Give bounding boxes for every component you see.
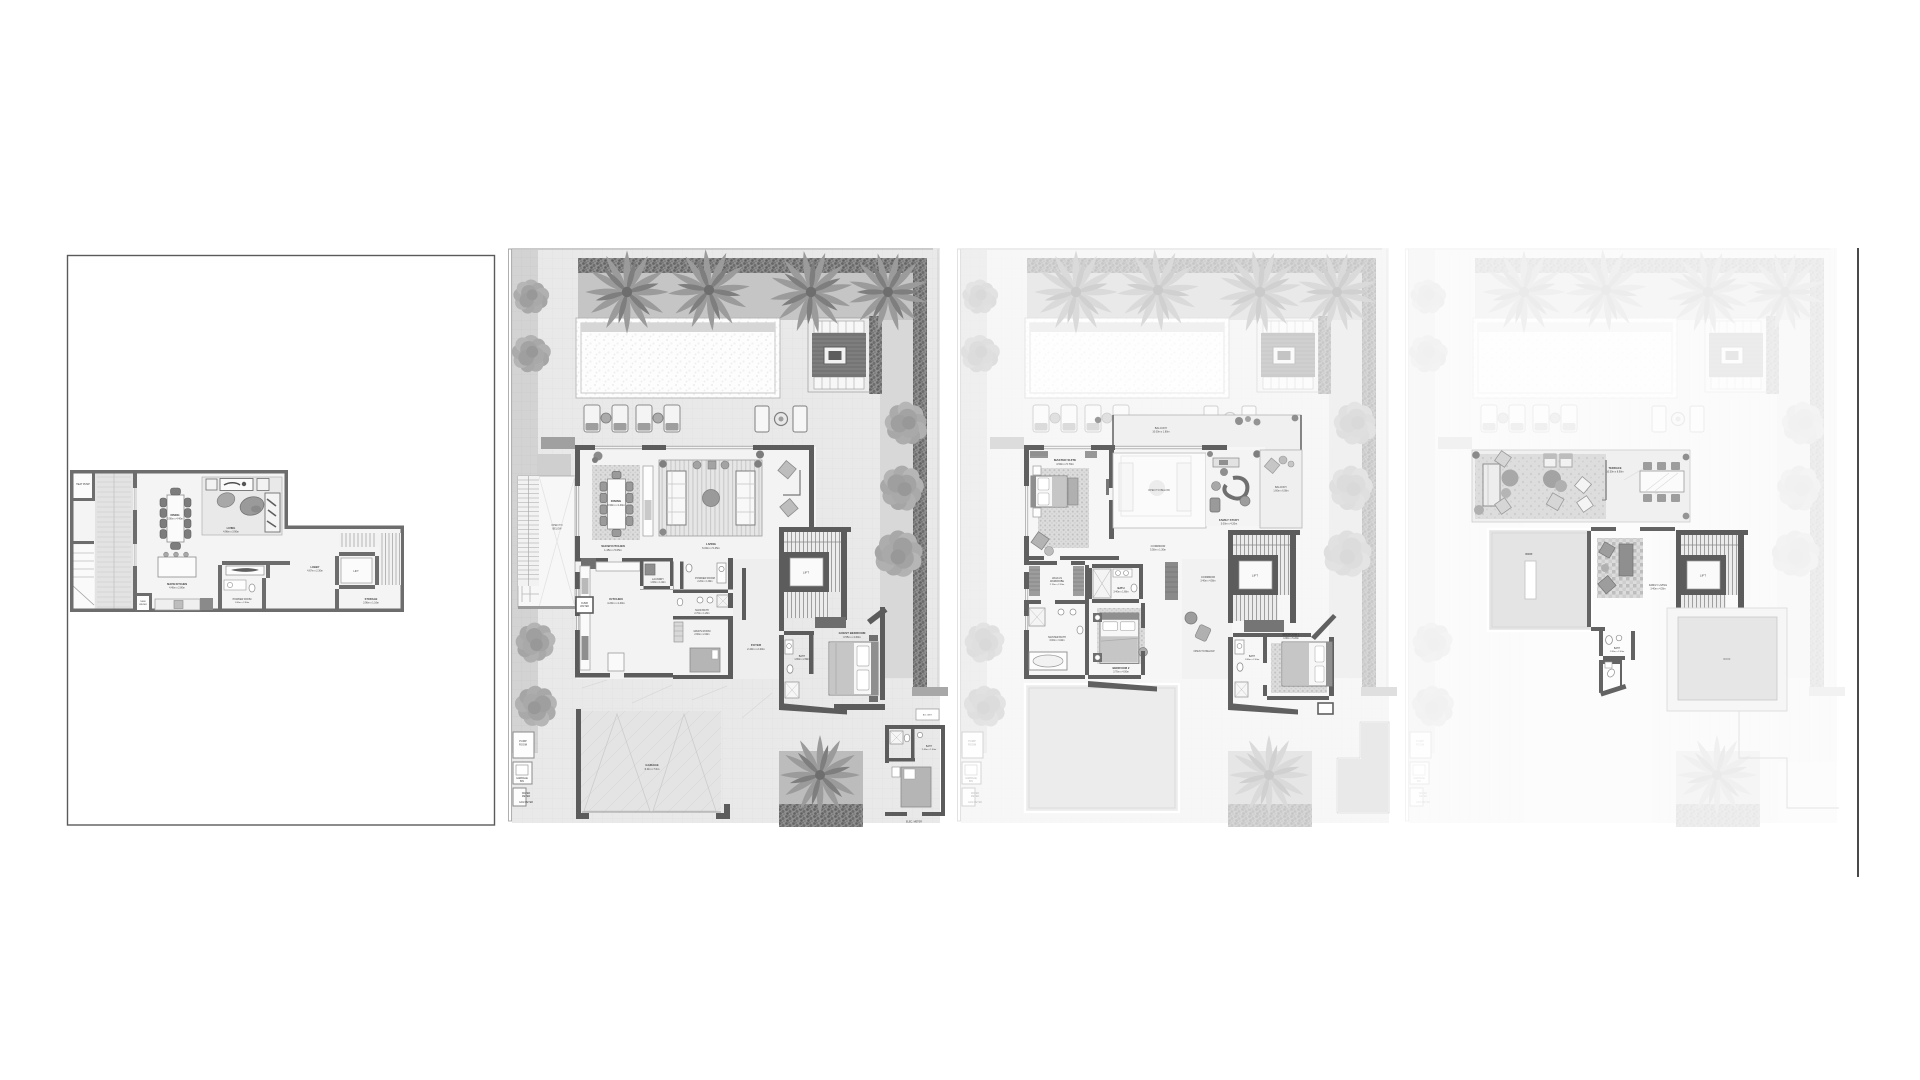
- svg-text:ROOF: ROOF: [1526, 553, 1533, 556]
- svg-text:4.67m x 2.30m: 4.67m x 2.30m: [307, 570, 323, 573]
- svg-text:3.55m x 4.60m: 3.55m x 4.60m: [843, 635, 862, 639]
- svg-text:GARAGE: GARAGE: [645, 763, 658, 767]
- svg-text:LOBBY: LOBBY: [310, 565, 319, 569]
- svg-text:5.50m x 1.30m: 5.50m x 1.30m: [1150, 549, 1166, 552]
- svg-text:STORAGE: STORAGE: [365, 597, 378, 601]
- svg-text:CORRIDOR: CORRIDOR: [1201, 575, 1215, 579]
- svg-text:FAMILY LIVING: FAMILY LIVING: [1649, 583, 1667, 587]
- svg-text:ROOF: ROOF: [1724, 658, 1731, 661]
- svg-text:MAID BATH: MAID BATH: [695, 609, 709, 612]
- svg-text:PUMP: PUMP: [519, 739, 527, 743]
- svg-text:MASTER SUITE: MASTER SUITE: [1054, 458, 1076, 462]
- svg-text:2.40m x 2.20m: 2.40m x 2.20m: [747, 647, 766, 651]
- svg-text:BATH: BATH: [1614, 647, 1620, 650]
- svg-text:LIFT: LIFT: [353, 569, 359, 573]
- svg-text:FAMILY STUDY: FAMILY STUDY: [1219, 518, 1239, 522]
- svg-text:LIVING: LIVING: [706, 542, 717, 546]
- svg-text:1.60m x 6.00m: 1.60m x 6.00m: [1273, 491, 1288, 493]
- svg-text:3.40m x 4.50m: 3.40m x 4.50m: [1200, 581, 1215, 583]
- svg-text:1.80m x 2.40m: 1.80m x 2.40m: [1610, 651, 1625, 653]
- svg-text:CORRIDOR: CORRIDOR: [1151, 544, 1166, 548]
- svg-text:HEAT PUMP: HEAT PUMP: [76, 483, 90, 486]
- svg-text:10.50m x 8.90m: 10.50m x 8.90m: [1606, 471, 1623, 474]
- svg-text:BEDROOM 2: BEDROOM 2: [1113, 666, 1130, 670]
- svg-text:6.0m x 7.0m: 6.0m x 7.0m: [645, 767, 661, 771]
- svg-text:WARDROBE: WARDROBE: [1050, 580, 1064, 583]
- svg-text:1.80m x 2.40m: 1.80m x 2.40m: [1245, 659, 1260, 661]
- svg-text:MAID'S ROOM: MAID'S ROOM: [694, 630, 711, 633]
- svg-text:1.45m x 5.05m: 1.45m x 5.05m: [604, 548, 623, 552]
- svg-text:OPEN TO BELOW: OPEN TO BELOW: [1148, 488, 1170, 492]
- svg-text:POWDER ROOM: POWDER ROOM: [233, 598, 252, 601]
- svg-text:BEDROOM 1: BEDROOM 1: [1283, 633, 1300, 637]
- svg-text:BELOW: BELOW: [552, 528, 562, 531]
- svg-text:3.70m x 4.00m: 3.70m x 4.00m: [1113, 671, 1129, 674]
- svg-text:TERRACE: TERRACE: [1609, 466, 1622, 470]
- svg-text:6.00m x 5.45m: 6.00m x 5.45m: [702, 546, 721, 550]
- svg-text:BATH: BATH: [799, 655, 806, 658]
- svg-text:GUEST BEDROOM: GUEST BEDROOM: [839, 631, 866, 635]
- svg-text:MASTER BATH: MASTER BATH: [1048, 636, 1066, 639]
- svg-text:10.00m x 1.80m: 10.00m x 1.80m: [1152, 431, 1169, 434]
- svg-text:2.70m x 1.20m: 2.70m x 1.20m: [694, 613, 709, 615]
- svg-text:1.80m x 2.80m: 1.80m x 2.80m: [794, 659, 809, 661]
- svg-text:4.40m x 2.80m: 4.40m x 2.80m: [169, 587, 185, 590]
- svg-text:3.90m x 4.40m: 3.90m x 4.40m: [607, 503, 626, 507]
- svg-text:FOYER: FOYER: [751, 643, 762, 647]
- svg-text:SHOW KITCHEN: SHOW KITCHEN: [601, 544, 625, 548]
- svg-text:4.50m x 5.70m: 4.50m x 5.70m: [1056, 462, 1075, 466]
- svg-text:WATER: WATER: [139, 603, 147, 606]
- svg-text:2.70m x 2.30m: 2.70m x 2.30m: [1050, 584, 1065, 586]
- svg-text:GAS METER: GAS METER: [519, 801, 533, 804]
- svg-text:BATH: BATH: [1249, 655, 1255, 658]
- svg-text:3.90m x 4.40m: 3.90m x 4.40m: [167, 518, 183, 521]
- svg-text:3.00m x 4.20m: 3.00m x 4.20m: [1221, 523, 1238, 526]
- svg-text:ELEC. METER: ELEC. METER: [906, 821, 922, 824]
- svg-text:4.96m x 3.90m: 4.96m x 3.90m: [223, 531, 239, 534]
- svg-text:4.00m x 5.20m: 4.00m x 5.20m: [1283, 637, 1299, 640]
- svg-text:3.40m x 1.60m: 3.40m x 1.60m: [1113, 592, 1128, 594]
- svg-text:LAUNDRY: LAUNDRY: [652, 578, 664, 581]
- svg-text:METER: METER: [522, 795, 531, 798]
- svg-text:BATH: BATH: [926, 745, 932, 748]
- svg-text:DUMB: DUMB: [581, 603, 588, 605]
- svg-text:DINING: DINING: [170, 513, 179, 517]
- svg-text:SHOW KITCHEN: SHOW KITCHEN: [167, 582, 187, 586]
- svg-text:BALCONY: BALCONY: [1275, 486, 1287, 489]
- svg-text:OPEN TO BELOW: OPEN TO BELOW: [1194, 650, 1216, 653]
- svg-text:ROOM: ROOM: [519, 743, 527, 747]
- svg-text:4.20m x 4.40m: 4.20m x 4.40m: [607, 601, 626, 605]
- svg-text:TANK: TANK: [140, 600, 146, 603]
- svg-text:BALCONY: BALCONY: [1155, 426, 1168, 430]
- svg-text:1.80m x 2.80m: 1.80m x 2.80m: [235, 602, 250, 604]
- svg-text:3.96m x 1.16m: 3.96m x 1.16m: [363, 602, 379, 605]
- svg-text:3.40m x 4.20m: 3.40m x 4.20m: [1650, 589, 1665, 591]
- svg-text:BATH: BATH: [1117, 586, 1124, 590]
- svg-text:3.00m x 3.40m: 3.00m x 3.40m: [1049, 640, 1064, 642]
- svg-text:2.40m x 1.40m: 2.40m x 1.40m: [922, 749, 937, 751]
- svg-text:LIVING: LIVING: [227, 526, 236, 530]
- svg-text:DINING: DINING: [611, 499, 622, 503]
- svg-text:A/C UNIT: A/C UNIT: [923, 714, 933, 717]
- svg-text:1.96m x 1.40m: 1.96m x 1.40m: [650, 582, 665, 584]
- svg-text:2.90m x 2.40m: 2.90m x 2.40m: [694, 634, 709, 636]
- svg-text:POWDER ROOM: POWDER ROOM: [695, 577, 715, 580]
- svg-text:WAITER: WAITER: [580, 605, 589, 608]
- svg-text:BIN: BIN: [520, 780, 524, 783]
- svg-text:KITCHEN: KITCHEN: [609, 597, 622, 601]
- svg-text:2.20m x 1.90m: 2.20m x 1.90m: [697, 581, 712, 583]
